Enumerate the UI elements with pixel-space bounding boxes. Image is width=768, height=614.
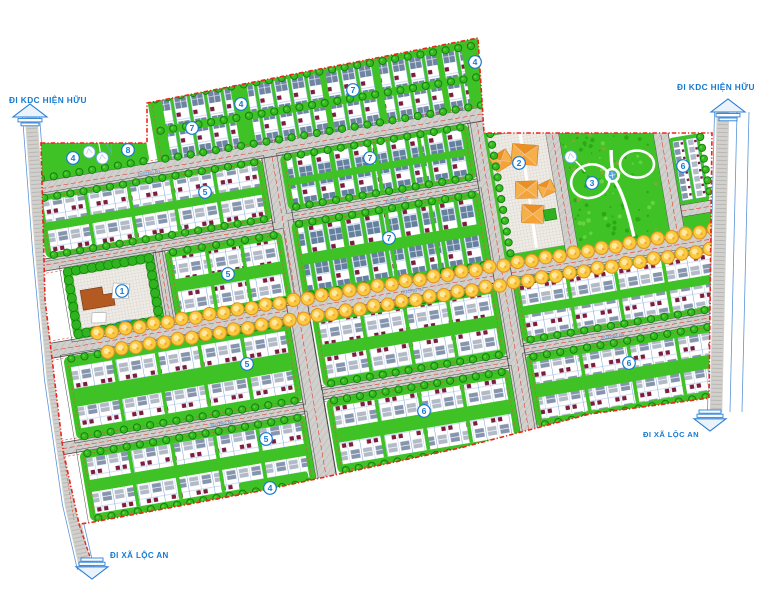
svg-text:3: 3 xyxy=(590,178,595,188)
svg-text:ĐI XÃ LỘC AN: ĐI XÃ LỘC AN xyxy=(110,551,169,560)
svg-text:8: 8 xyxy=(126,145,131,155)
svg-text:ĐI XÃ LỘC AN: ĐI XÃ LỘC AN xyxy=(643,430,699,439)
svg-text:1: 1 xyxy=(120,286,125,296)
svg-text:5: 5 xyxy=(226,269,231,279)
svg-text:2: 2 xyxy=(517,158,522,168)
svg-text:5: 5 xyxy=(203,187,208,197)
svg-text:6: 6 xyxy=(681,161,686,171)
svg-text:4: 4 xyxy=(71,153,76,163)
svg-text:5: 5 xyxy=(264,434,269,444)
svg-text:4: 4 xyxy=(473,57,478,67)
svg-text:6: 6 xyxy=(627,358,632,368)
svg-text:ĐI KDC HIỆN HỮU: ĐI KDC HIỆN HỮU xyxy=(677,81,755,92)
svg-text:4: 4 xyxy=(239,99,244,109)
svg-text:7: 7 xyxy=(368,153,373,163)
svg-text:5: 5 xyxy=(245,359,250,369)
svg-text:4: 4 xyxy=(268,483,273,493)
svg-text:7: 7 xyxy=(351,85,356,95)
svg-text:7: 7 xyxy=(190,123,195,133)
svg-text:6: 6 xyxy=(422,406,427,416)
svg-text:7: 7 xyxy=(387,233,392,243)
svg-text:ĐI KDC HIỆN HỮU: ĐI KDC HIỆN HỮU xyxy=(9,94,87,105)
